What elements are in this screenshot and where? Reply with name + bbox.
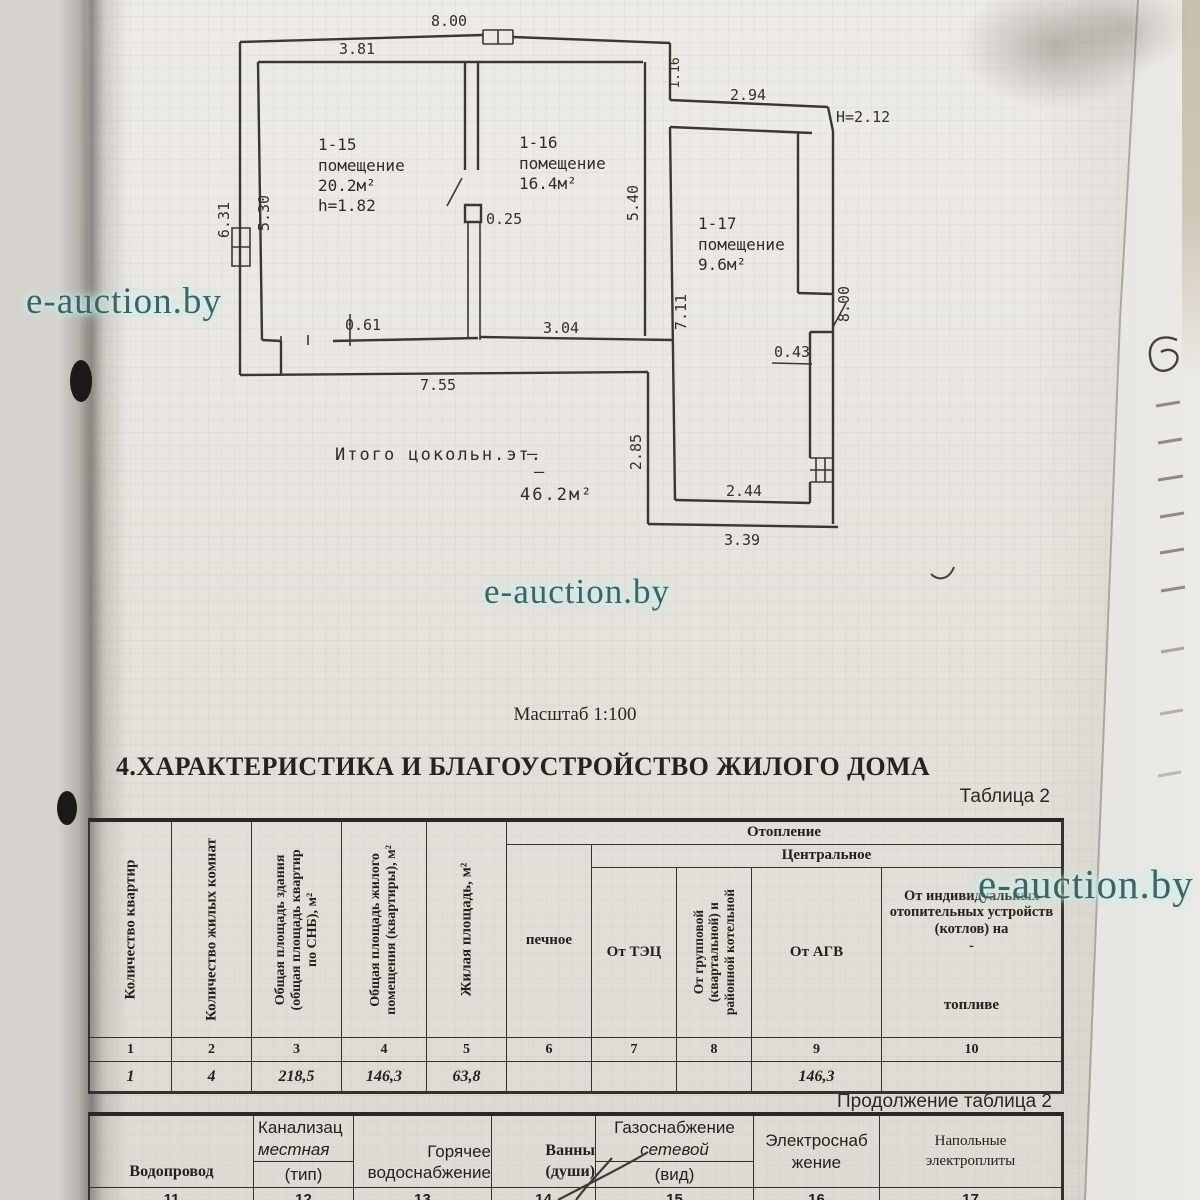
e-auction-watermark: e-auction.by bbox=[26, 280, 222, 323]
value-individual bbox=[882, 1062, 1062, 1092]
col-number: 6 bbox=[507, 1038, 592, 1062]
sewerage-label: Канализац bbox=[258, 1117, 343, 1138]
header-apartment-count: Количество квартир bbox=[90, 822, 172, 1038]
binder-hole bbox=[57, 791, 77, 825]
header-living-rooms-count: Количество жилых комнат bbox=[172, 822, 252, 1038]
col-number: 2 bbox=[172, 1038, 252, 1062]
value-chp bbox=[592, 1062, 677, 1092]
header-sewerage: Канализац местная (тип) bbox=[254, 1116, 354, 1188]
header-from-group-boiler: От групповой (квартальной) и районной ко… bbox=[677, 868, 752, 1038]
header-baths: Ванны (души) bbox=[492, 1116, 596, 1188]
col-number: 11 bbox=[90, 1188, 254, 1200]
binder-hole bbox=[70, 360, 92, 402]
value-living-area: 63,8 bbox=[427, 1062, 507, 1092]
scanned-document-photo: 8.00 3.81 1.16 2.94 H=2.12 6.31 5.30 5.4… bbox=[0, 0, 1200, 1200]
gas-kind-label: (вид) bbox=[596, 1161, 753, 1187]
value-agv: 146,3 bbox=[752, 1062, 882, 1092]
header-from-agv: От АГВ bbox=[752, 868, 882, 1038]
table-2-label: Таблица 2 bbox=[898, 786, 1050, 808]
table-2-continuation-label: Продолжение таблица 2 bbox=[748, 1091, 1052, 1113]
header-electric-stoves: Напольные электроплиты bbox=[880, 1116, 1062, 1188]
col-number: 3 bbox=[252, 1038, 342, 1062]
col-number: 17 bbox=[880, 1188, 1062, 1200]
header-hot-water: Горячее водоснабжение bbox=[354, 1116, 492, 1188]
value-building-area: 218,5 bbox=[252, 1062, 342, 1092]
col-number: 15 bbox=[596, 1188, 754, 1200]
col-number: 7 bbox=[592, 1038, 677, 1062]
scale-label: Масштаб 1:100 bbox=[460, 704, 690, 726]
header-building-total-area: Общая площадь здания (общая площадь квар… bbox=[252, 822, 342, 1038]
header-gas-supply: Газоснабжение сетевой (вид) bbox=[596, 1116, 754, 1188]
gas-label: Газоснабжение bbox=[614, 1117, 735, 1138]
e-auction-watermark: e-auction.by bbox=[484, 572, 670, 612]
gas-network-label: сетевой bbox=[640, 1139, 709, 1160]
header-dwelling-total-area: Общая площадь жилого помещения (квартиры… bbox=[342, 822, 427, 1038]
sewerage-local-label: местная bbox=[258, 1139, 329, 1160]
e-auction-watermark: e-auction.by bbox=[978, 860, 1194, 908]
col-number: 5 bbox=[427, 1038, 507, 1062]
fuel-blank-dash: - bbox=[969, 938, 974, 955]
value-living-rooms: 4 bbox=[172, 1062, 252, 1092]
value-apartment-count: 1 bbox=[90, 1062, 172, 1092]
col-number: 9 bbox=[752, 1038, 882, 1062]
col-number: 8 bbox=[677, 1038, 752, 1062]
sewerage-type-label: (тип) bbox=[254, 1161, 353, 1187]
value-stove bbox=[507, 1062, 592, 1092]
section-heading: 4.ХАРАКТЕРИСТИКА И БЛАГОУСТРОЙСТВО ЖИЛОГ… bbox=[116, 752, 956, 782]
col-number: 12 bbox=[254, 1188, 354, 1200]
col-number: 10 bbox=[882, 1038, 1062, 1062]
header-living-area: Жилая площадь, м² bbox=[427, 822, 507, 1038]
header-stove-heating: печное bbox=[507, 845, 592, 1038]
col-number: 4 bbox=[342, 1038, 427, 1062]
header-water-supply: Водопровод bbox=[90, 1116, 254, 1188]
header-from-chp: От ТЭЦ bbox=[592, 868, 677, 1038]
heating-group-header: Отопление bbox=[507, 822, 1062, 845]
value-dwelling-area: 146,3 bbox=[342, 1062, 427, 1092]
col-number: 14 bbox=[492, 1188, 596, 1200]
photo-smudge bbox=[930, 0, 1200, 160]
col-number: 16 bbox=[754, 1188, 880, 1200]
col-number: 1 bbox=[90, 1038, 172, 1062]
header-fuel: топливе bbox=[882, 974, 1062, 1038]
col-number: 13 bbox=[354, 1188, 492, 1200]
header-electricity: Электроснаб жение bbox=[754, 1116, 880, 1188]
continuation-table: Водопровод Канализац местная (тип) Горяч… bbox=[88, 1112, 1064, 1200]
value-group-boiler bbox=[677, 1062, 752, 1092]
characteristics-table: Отопление Центральное Количество квартир… bbox=[88, 818, 1064, 1094]
